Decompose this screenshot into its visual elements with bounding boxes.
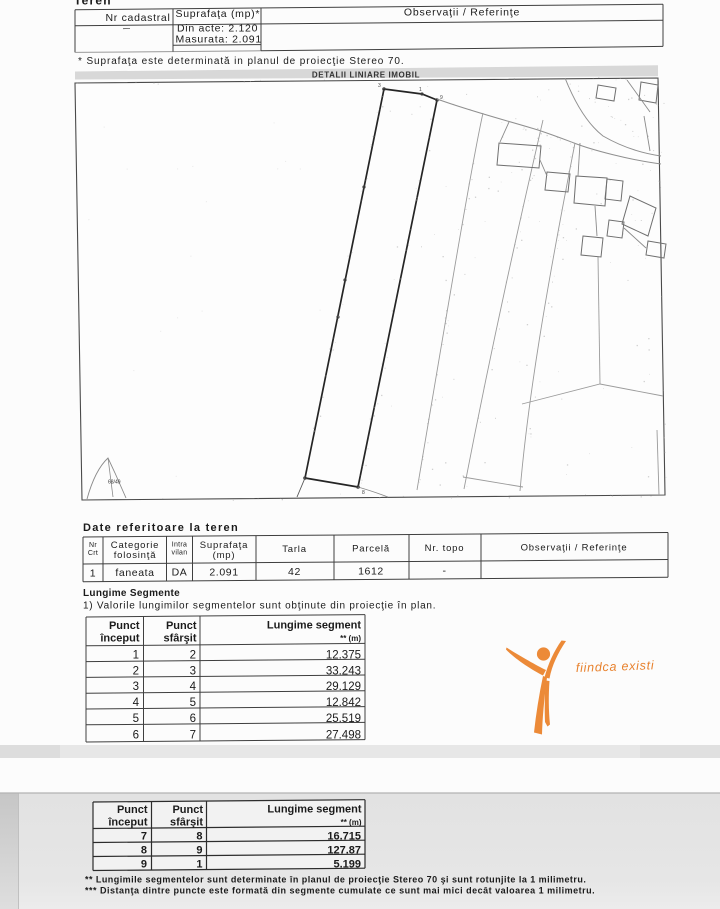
svg-text:sfârşit: sfârşit [163, 633, 196, 645]
svg-text:fiindca existi: fiindca existi [576, 658, 655, 675]
svg-text:Punct: Punct [109, 620, 140, 632]
svg-text:DETALII LINIARE IMOBIL: DETALII LINIARE IMOBIL [312, 71, 420, 80]
svg-text:33.243: 33.243 [326, 665, 361, 677]
svg-text:5: 5 [190, 697, 196, 709]
svg-text:68/49: 68/49 [108, 480, 121, 486]
svg-text:42: 42 [288, 566, 301, 578]
svg-text:1: 1 [419, 87, 422, 93]
svg-text:3: 3 [133, 681, 139, 693]
svg-text:Tarla: Tarla [282, 544, 307, 555]
svg-text:Lungime segment: Lungime segment [267, 804, 361, 816]
svg-text:6: 6 [133, 730, 139, 742]
svg-text:12.842: 12.842 [326, 697, 361, 709]
svg-text:Observaţii / Referinţe: Observaţii / Referinţe [521, 543, 628, 554]
svg-text:faneata: faneata [115, 567, 154, 579]
svg-text:5: 5 [133, 713, 139, 725]
svg-text:început: început [107, 817, 147, 829]
svg-text:Lungime segment: Lungime segment [267, 620, 361, 632]
svg-text:1: 1 [133, 650, 139, 662]
svg-text:27.498: 27.498 [326, 730, 361, 742]
svg-text:3: 3 [190, 665, 196, 677]
svg-text:-: - [442, 565, 446, 577]
svg-text:Teren: Teren [74, 0, 112, 8]
svg-text:vilan: vilan [172, 550, 188, 557]
svg-text:4: 4 [133, 697, 140, 709]
svg-text:1612: 1612 [358, 566, 384, 578]
svg-text:25.519: 25.519 [326, 713, 361, 725]
svg-text:Date referitoare la teren: Date referitoare la teren [83, 522, 239, 534]
svg-text:Punct: Punct [166, 620, 197, 632]
svg-text:9: 9 [196, 845, 202, 857]
svg-text:Nr. topo: Nr. topo [425, 543, 465, 554]
svg-text:7: 7 [141, 831, 147, 843]
svg-text:6: 6 [190, 713, 196, 725]
svg-text:3: 3 [378, 83, 381, 89]
svg-text:29.129: 29.129 [326, 681, 361, 693]
svg-text:Nr: Nr [89, 542, 97, 549]
svg-text:(mp): (mp) [213, 550, 236, 561]
svg-text:8: 8 [362, 490, 365, 496]
svg-text:Masurata: 2.091: Masurata: 2.091 [176, 34, 262, 46]
svg-text:8: 8 [196, 831, 202, 843]
svg-text:127.87: 127.87 [327, 845, 361, 857]
svg-text:4: 4 [190, 681, 197, 693]
svg-text:2.091: 2.091 [209, 567, 238, 579]
svg-text:9: 9 [141, 859, 147, 871]
svg-text:2: 2 [133, 665, 139, 677]
svg-text:5.199: 5.199 [333, 859, 361, 871]
svg-text:Nr cadastral: Nr cadastral [105, 12, 170, 24]
svg-text:1) Valorile lungimilor segment: 1) Valorile lungimilor segmentelor sunt … [83, 601, 436, 612]
svg-text:început: început [99, 633, 139, 645]
svg-text:DA: DA [172, 567, 188, 579]
svg-text:folosinţă: folosinţă [114, 550, 157, 561]
svg-text:Din acte: 2.120: Din acte: 2.120 [177, 23, 258, 35]
svg-text:** Lungimile segmentelor sunt: ** Lungimile segmentelor sunt determinat… [85, 875, 586, 885]
svg-text:Observaţii / Referinţe: Observaţii / Referinţe [404, 7, 520, 19]
svg-text:*** Distanţa dintre puncte est: *** Distanţa dintre puncte este formată … [85, 886, 595, 896]
svg-text:Parcelă: Parcelă [352, 544, 390, 555]
svg-text:Intra: Intra [172, 542, 188, 549]
svg-text:Punct: Punct [172, 804, 203, 816]
svg-text:2: 2 [190, 650, 196, 662]
svg-text:** (m): ** (m) [340, 634, 361, 643]
svg-text:* Suprafaţa este determinată i: * Suprafaţa este determinată in planul d… [78, 56, 405, 67]
svg-text:1: 1 [90, 568, 96, 580]
svg-text:Suprafaţa (mp)*: Suprafaţa (mp)* [176, 8, 261, 20]
svg-text:12.375: 12.375 [326, 650, 361, 662]
svg-text:Punct: Punct [117, 804, 148, 816]
svg-text:16.715: 16.715 [327, 831, 361, 843]
svg-text:Lungime Segmente: Lungime Segmente [83, 588, 180, 599]
svg-text:8: 8 [141, 845, 147, 857]
svg-text:sfârşit: sfârşit [170, 817, 203, 829]
svg-text:Crt: Crt [88, 550, 98, 557]
svg-text:7: 7 [190, 730, 196, 742]
svg-text:1: 1 [196, 859, 202, 871]
svg-text:** (m): ** (m) [341, 818, 362, 827]
